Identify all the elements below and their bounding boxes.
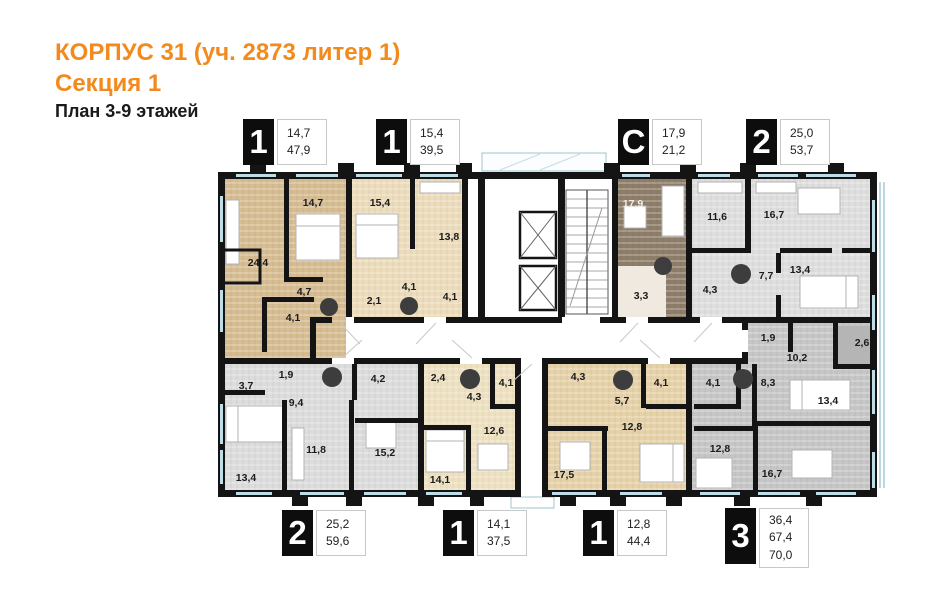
- room-area-label: 3,7: [239, 380, 254, 392]
- apartment-badge-bottom-2: 1 14,1 37,5: [443, 510, 527, 556]
- apartment-areas: 14,7 47,9: [277, 119, 327, 165]
- room-area-label: 12,6: [484, 425, 505, 437]
- area-line: 25,0: [790, 125, 820, 142]
- room-area-label: 14,1: [430, 474, 451, 486]
- room-area-label: 4,3: [703, 284, 718, 296]
- area-line: 36,4: [769, 512, 799, 529]
- room-area-label: 4,3: [571, 371, 586, 383]
- area-line: 21,2: [662, 142, 692, 159]
- area-line: 12,8: [627, 516, 657, 533]
- section-title: Секция 1: [55, 69, 400, 100]
- room-area-label: 11,6: [707, 211, 727, 223]
- apartment-type: С: [618, 119, 649, 165]
- room-area-label: 17,9: [623, 198, 644, 210]
- apartment-type: 3: [725, 508, 756, 564]
- apartment-type: 2: [746, 119, 777, 165]
- area-line: 47,9: [287, 142, 317, 159]
- room-area-label: 15,2: [375, 447, 396, 459]
- floors-subtitle: План 3-9 этажей: [55, 99, 400, 123]
- apartment-areas: 17,9 21,2: [652, 119, 702, 165]
- apartment-type: 1: [583, 510, 614, 556]
- area-line: 44,4: [627, 533, 657, 550]
- room-area-label: 9,4: [289, 397, 304, 409]
- apartment-badge-bottom-3: 1 12,8 44,4: [583, 510, 667, 556]
- area-line: 15,4: [420, 125, 450, 142]
- area-line: 37,5: [487, 533, 517, 550]
- room-area-label: 12,8: [622, 421, 643, 433]
- room-area-label: 17,5: [554, 469, 575, 481]
- apartment-badge-bottom-4: 3 36,4 67,4 70,0: [725, 508, 809, 568]
- room-area-label: 4,1: [499, 377, 514, 389]
- apartment-areas: 15,4 39,5: [410, 119, 460, 165]
- room-area-label: 10,2: [787, 352, 808, 364]
- room-area-label: 13,4: [236, 472, 257, 484]
- room-area-label: 4,1: [443, 291, 458, 303]
- room-area-label: 4,3: [467, 391, 482, 403]
- stairs: [566, 190, 608, 314]
- area-line: 70,0: [769, 547, 799, 564]
- apartment-type: 1: [243, 119, 274, 165]
- room-area-label: 12,8: [710, 443, 731, 455]
- apartment-areas: 14,1 37,5: [477, 510, 527, 556]
- room-area-label: 4,1: [706, 377, 721, 389]
- room-area-label: 4,7: [297, 286, 312, 298]
- room-area-label: 13,4: [818, 395, 839, 407]
- apartment-badge-bottom-1: 2 25,2 59,6: [282, 510, 366, 556]
- room-area-label: 13,4: [790, 264, 811, 276]
- room-area-label: 2,4: [431, 372, 446, 384]
- building-title: КОРПУС 31 (уч. 2873 литер 1): [55, 38, 400, 69]
- floor-plan-page: { "header": { "building": "КОРПУС 31 (уч…: [0, 0, 941, 600]
- apartment-areas: 12,8 44,4: [617, 510, 667, 556]
- room-area-label: 4,2: [371, 373, 386, 385]
- room-area-label: 1,9: [279, 369, 294, 381]
- apartment-areas: 25,2 59,6: [316, 510, 366, 556]
- apartment-badge-top-1: 1 14,7 47,9: [243, 119, 327, 165]
- room-area-label: 16,7: [764, 209, 785, 221]
- apartment-type: 2: [282, 510, 313, 556]
- room-area-label: 11,8: [306, 444, 326, 456]
- area-line: 14,7: [287, 125, 317, 142]
- apartment-type: 1: [443, 510, 474, 556]
- room-area-label: 13,8: [439, 231, 460, 243]
- area-line: 14,1: [487, 516, 517, 533]
- room-area-label: 7,7: [759, 270, 774, 282]
- apartment-badge-top-4: 2 25,0 53,7: [746, 119, 830, 165]
- room-area-label: 4,1: [402, 281, 417, 293]
- area-line: 59,6: [326, 533, 356, 550]
- room-area-label: 8,3: [761, 377, 776, 389]
- room-area-label: 1,9: [761, 332, 776, 344]
- room-area-label: 4,1: [286, 312, 301, 324]
- room-area-label: 2,6: [855, 337, 870, 349]
- area-line: 53,7: [790, 142, 820, 159]
- room-area-label: 2,1: [367, 295, 382, 307]
- room-area-label: 14,7: [303, 197, 324, 209]
- area-line: 39,5: [420, 142, 450, 159]
- area-line: 67,4: [769, 529, 799, 546]
- apartment-badge-top-3: С 17,9 21,2: [618, 119, 702, 165]
- apartment-badge-top-2: 1 15,4 39,5: [376, 119, 460, 165]
- title-block: КОРПУС 31 (уч. 2873 литер 1) Секция 1 Пл…: [55, 38, 400, 124]
- area-line: 17,9: [662, 125, 692, 142]
- room-area-label: 4,1: [654, 377, 669, 389]
- room-area-label: 16,7: [762, 468, 783, 480]
- room-area-label: 3,3: [634, 290, 649, 302]
- room-area-label: 24,4: [248, 257, 269, 269]
- room-area-label: 15,4: [370, 197, 391, 209]
- apartment-areas: 25,0 53,7: [780, 119, 830, 165]
- area-line: 25,2: [326, 516, 356, 533]
- apartment-type: 1: [376, 119, 407, 165]
- apartment-areas: 36,4 67,4 70,0: [759, 508, 809, 568]
- room-area-label: 5,7: [615, 395, 630, 407]
